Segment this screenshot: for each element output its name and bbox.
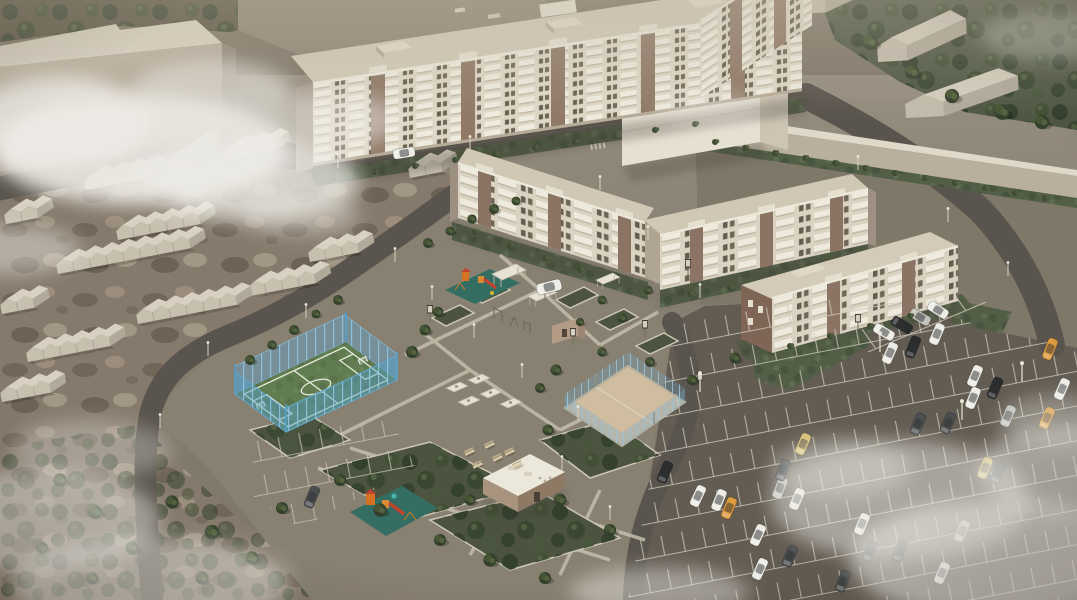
render-viewport: [0, 0, 1077, 600]
atmosphere: [0, 0, 1077, 600]
aerial-render: [0, 0, 1077, 600]
